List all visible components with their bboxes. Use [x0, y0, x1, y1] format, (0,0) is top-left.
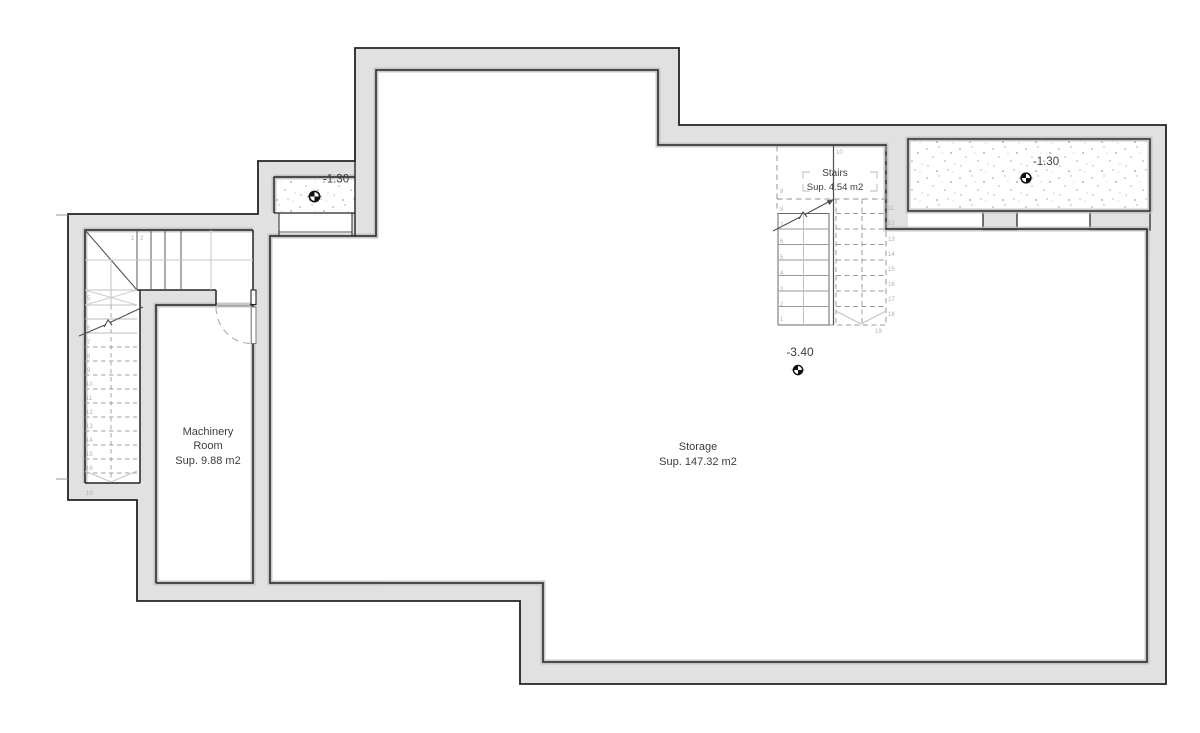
svg-text:13: 13: [86, 424, 93, 430]
svg-text:14: 14: [86, 438, 93, 444]
svg-text:19: 19: [86, 491, 93, 497]
svg-text:15: 15: [86, 452, 93, 458]
svg-text:-1.30: -1.30: [323, 174, 349, 186]
svg-text:Sup. 4.54 m2: Sup. 4.54 m2: [807, 182, 864, 193]
svg-text:11: 11: [888, 206, 895, 212]
svg-text:Sup. 147.32 m2: Sup. 147.32 m2: [659, 456, 737, 468]
svg-text:18: 18: [888, 312, 895, 318]
svg-text:16: 16: [86, 466, 93, 472]
svg-text:Stairs: Stairs: [822, 168, 848, 179]
svg-text:Machinery: Machinery: [183, 426, 234, 438]
svg-text:Storage: Storage: [679, 441, 718, 453]
svg-text:Room: Room: [193, 440, 222, 452]
svg-text:10: 10: [836, 150, 843, 156]
svg-text:Sup. 9.88 m2: Sup. 9.88 m2: [175, 455, 240, 467]
svg-text:14: 14: [888, 252, 895, 258]
svg-text:10: 10: [86, 382, 93, 388]
svg-text:-3.40: -3.40: [786, 345, 814, 359]
svg-text:19: 19: [875, 329, 882, 335]
svg-text:-1.30: -1.30: [1033, 156, 1059, 168]
svg-text:11: 11: [86, 396, 93, 402]
svg-text:15: 15: [888, 267, 895, 273]
svg-text:17: 17: [888, 297, 895, 303]
svg-text:16: 16: [888, 282, 895, 288]
svg-text:12: 12: [86, 410, 93, 416]
svg-text:13: 13: [888, 237, 895, 243]
svg-text:12: 12: [888, 221, 895, 227]
